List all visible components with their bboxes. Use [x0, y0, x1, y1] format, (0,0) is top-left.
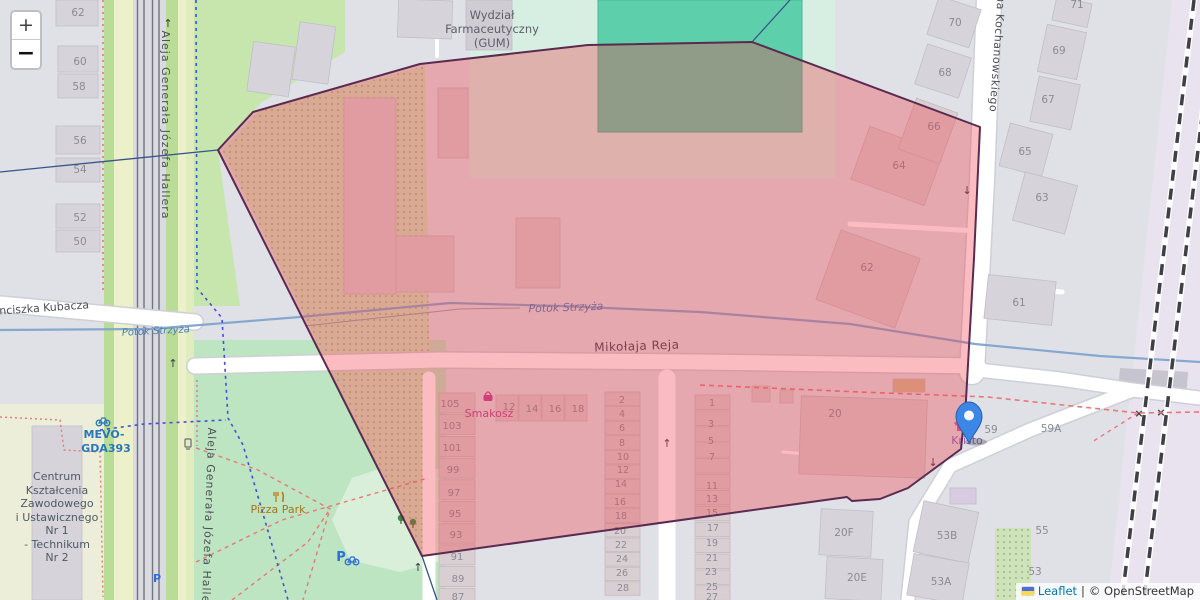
map-label-68: 21	[706, 553, 718, 564]
map-tiles: ××↑↑↑↑↑↑Aleja Generała Józefa HalleraAle…	[0, 0, 1200, 600]
bld-tl1	[247, 41, 296, 96]
map-label-56: 24	[616, 554, 628, 565]
map-label-7: Wydział	[470, 8, 516, 22]
map-label-67: 19	[706, 538, 718, 549]
map-label-26: 58	[72, 81, 85, 93]
map-label-25: 60	[73, 56, 86, 68]
hallera-edge	[186, 0, 194, 600]
map-label-71: 27	[706, 592, 718, 600]
map-label-10: Centrum	[33, 470, 81, 483]
map-label-57: 26	[616, 568, 628, 579]
map-label-87: 20E	[847, 572, 867, 584]
bld-tl2	[292, 22, 336, 84]
map-label-11: Kształcenia	[26, 484, 88, 497]
map-label-89: 53A	[931, 576, 952, 588]
oneway-arrow-3: ↑	[413, 561, 422, 574]
map-label-9: (GUM)	[474, 36, 510, 50]
map-label-14: Nr 1	[45, 524, 68, 537]
map-label-66: 17	[707, 523, 719, 534]
leaflet-link[interactable]: Leaflet	[1038, 584, 1077, 598]
map-canvas[interactable]: ××↑↑↑↑↑↑Aleja Generała Józefa HalleraAle…	[0, 0, 1200, 600]
map-label-86: 20F	[834, 527, 853, 539]
map-label-17: MEVO-	[84, 428, 125, 441]
map-label-18: GDA393	[81, 442, 131, 455]
zoom-in-button[interactable]: +	[12, 12, 40, 40]
map-label-0: Aleja Generała Józefa Hallera	[159, 30, 172, 219]
map-label-23: P	[153, 572, 161, 585]
map-label-85: 59A	[1041, 423, 1062, 435]
map-label-80: 65	[1018, 146, 1031, 158]
hallera-verge-left	[104, 0, 114, 600]
map-label-22: P	[336, 550, 346, 565]
map-label-15: - Technikum	[24, 538, 90, 551]
bld-67	[1030, 76, 1081, 130]
map-label-8: Farmaceutyczny	[445, 22, 539, 36]
map-label-29: 52	[73, 212, 86, 224]
map-label-28: 54	[73, 164, 87, 176]
marker-hole	[964, 411, 974, 421]
map-label-55: 22	[615, 540, 627, 551]
osm-link[interactable]: © OpenStreetMap	[1089, 584, 1194, 598]
zoom-control: + −	[10, 10, 42, 70]
map-label-84: 59	[984, 424, 997, 436]
map-label-58: 28	[617, 583, 629, 594]
map-label-73: 68	[938, 67, 951, 79]
map-label-79: 67	[1041, 94, 1054, 106]
map-label-12: Zawodowego	[20, 497, 93, 510]
map-label-30: 50	[73, 236, 86, 248]
map-label-69: 23	[705, 567, 717, 578]
map-label-19: Pizza Park	[250, 503, 306, 516]
oneway-arrow-0: ↑	[163, 17, 172, 30]
map-label-13: i Ustawicznego	[16, 511, 99, 524]
map-label-90: 55	[1035, 525, 1048, 537]
attribution-bar: Leaflet | © OpenStreetMap	[1016, 583, 1200, 600]
map-label-88: 53B	[937, 530, 958, 542]
bld-lavender	[950, 488, 976, 504]
map-label-27: 56	[73, 135, 87, 147]
map-label-40: 87	[452, 592, 465, 600]
map-label-82: 61	[1012, 297, 1025, 309]
map-label-38: 91	[451, 552, 464, 563]
oneway-arrow-1: ↑	[168, 357, 177, 370]
map-label-78: 69	[1052, 45, 1065, 57]
map-label-91: 53	[1028, 566, 1041, 578]
map-label-39: 89	[452, 574, 465, 585]
map-label-24: 62	[71, 7, 84, 19]
ukraine-flag-icon	[1022, 587, 1034, 595]
attribution-separator: |	[1081, 584, 1085, 598]
zoom-out-button[interactable]: −	[12, 40, 40, 68]
map-label-81: 63	[1035, 192, 1048, 204]
map-label-72: 70	[948, 17, 961, 29]
map-label-16: Nr 2	[45, 551, 68, 564]
map-label-77: 71	[1070, 0, 1083, 11]
